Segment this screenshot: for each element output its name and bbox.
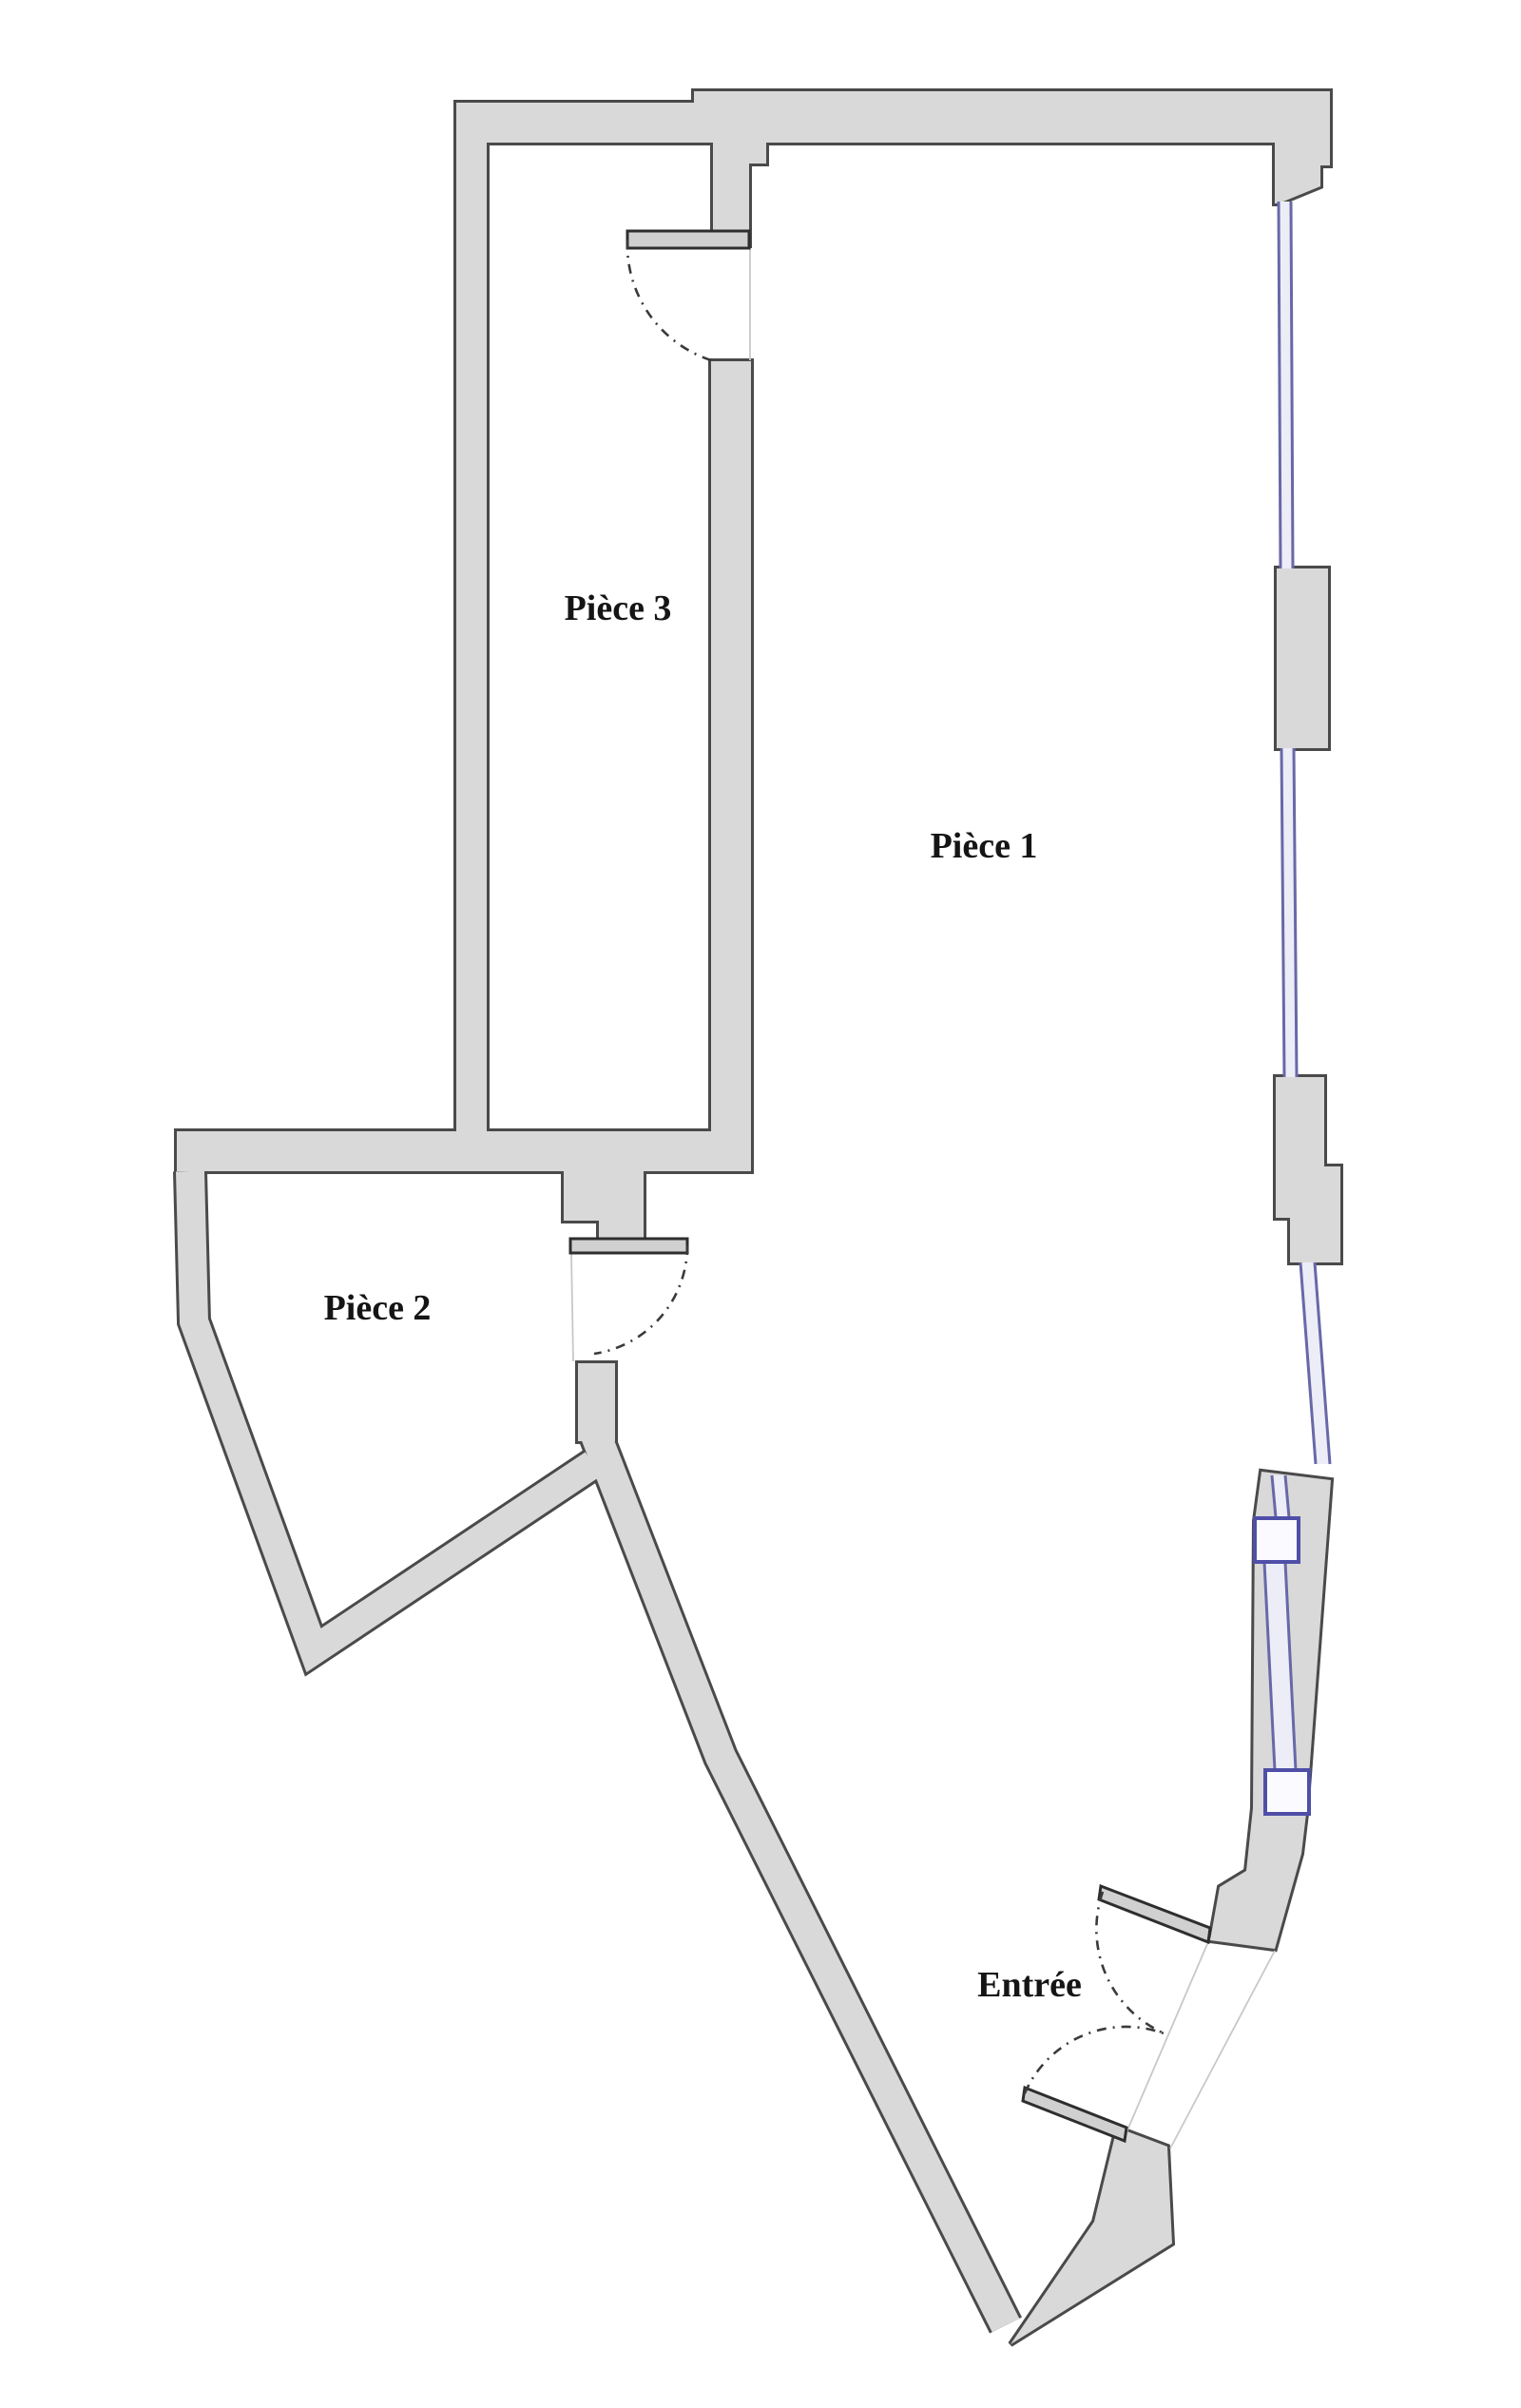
threshold-line — [1170, 1951, 1275, 2148]
piece-2-door-leaf — [570, 1239, 687, 1253]
labels-layer: Pièce 3 Pièce 1 Pièce 2 Entrée — [324, 588, 1082, 2005]
wall-segment — [711, 361, 751, 1171]
wall-segment — [190, 1171, 593, 1650]
room-label-piece-3: Pièce 3 — [565, 588, 672, 628]
room-label-entree: Entrée — [977, 1965, 1082, 2005]
entree-door-lower-leaf — [1023, 2088, 1126, 2141]
floor-plan: Pièce 3 Pièce 1 Pièce 2 Entrée — [0, 0, 1521, 2408]
wall-segment — [694, 91, 1330, 143]
opening-lines-layer — [571, 248, 1275, 2148]
wall-segment — [177, 1131, 751, 1171]
window-pillar — [1277, 568, 1328, 748]
walls-fill-layer — [177, 91, 1340, 2344]
wall-segment — [456, 103, 711, 143]
door-plane-line — [1126, 1937, 1210, 2132]
doors-layer — [570, 231, 1210, 2141]
wall-segment — [578, 1363, 615, 1441]
window-glazing-line — [1279, 202, 1280, 568]
entree-door-lower-swing-arc — [1025, 2027, 1166, 2093]
door-plane-line — [571, 1253, 573, 1361]
floor-plan-page: Pièce 3 Pièce 1 Pièce 2 Entrée — [0, 0, 1521, 2408]
window-pillar — [1276, 1077, 1340, 1262]
walls-outline-layer — [177, 91, 1340, 2344]
room-label-piece-1: Pièce 1 — [931, 826, 1038, 866]
wall-segment — [456, 103, 487, 1171]
french-window-frame-bottom — [1265, 1770, 1309, 1814]
entree-door-upper-leaf — [1099, 1886, 1210, 1942]
piece-3-door-swing-arc — [627, 240, 711, 360]
piece-2-door-swing-arc — [594, 1245, 687, 1354]
window-glazing-line — [1291, 202, 1293, 568]
piece-3-door-leaf — [627, 231, 749, 248]
wall-segment — [1011, 2128, 1172, 2344]
french-window-frame-top — [1255, 1518, 1299, 1562]
room-label-piece-2: Pièce 2 — [324, 1288, 432, 1328]
wall-segment — [747, 143, 766, 164]
wall-segment — [564, 1171, 644, 1221]
window-right-lower — [1300, 1262, 1330, 1464]
